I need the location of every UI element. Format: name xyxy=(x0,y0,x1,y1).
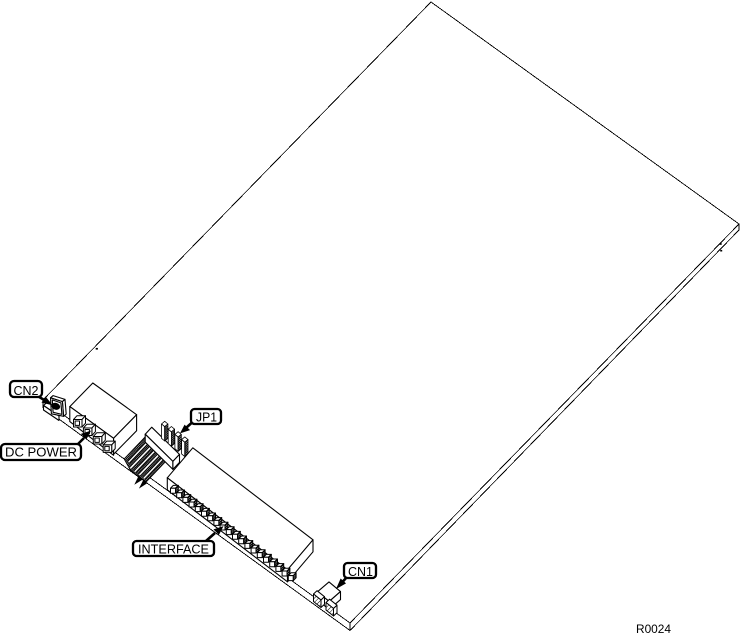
svg-text:CN1: CN1 xyxy=(348,564,373,579)
svg-text:CN2: CN2 xyxy=(14,383,39,398)
svg-text:JP1: JP1 xyxy=(196,410,217,425)
svg-text:INTERFACE: INTERFACE xyxy=(138,542,209,557)
svg-text:DC POWER: DC POWER xyxy=(5,445,77,460)
svg-text:R0024: R0024 xyxy=(636,622,671,636)
